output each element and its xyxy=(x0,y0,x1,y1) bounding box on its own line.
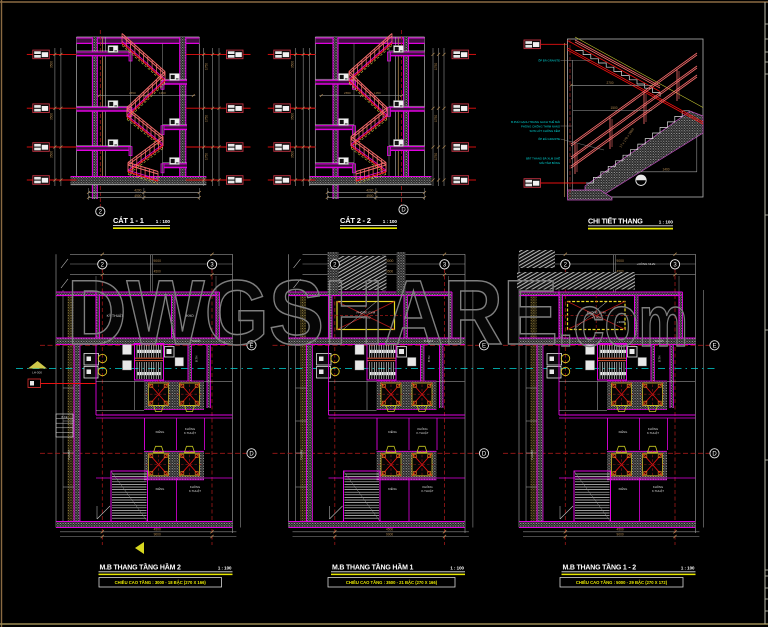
svg-text:1 : 100: 1 : 100 xyxy=(218,566,232,571)
svg-text:1750: 1750 xyxy=(434,63,438,70)
svg-text:9000: 9000 xyxy=(616,259,624,263)
svg-text:KIẾNG: KIẾNG xyxy=(156,486,165,491)
svg-text:BẬT THANG ĐÁ XLM GHẾ: BẬT THANG ĐÁ XLM GHẾ xyxy=(526,156,560,161)
svg-text:KIẾNG: KIẾNG xyxy=(619,429,628,434)
svg-text:4200: 4200 xyxy=(366,189,373,193)
svg-text:CHIỀU CAO TẦNG : 3000 - 18 BẬC: CHIỀU CAO TẦNG : 3000 - 18 BẬC (270 X 16… xyxy=(115,580,207,585)
svg-text:1350: 1350 xyxy=(374,91,381,95)
svg-text:TH.MÁY: TH.MÁY xyxy=(300,449,304,460)
svg-text:K.THUẬT: K.THUẬT xyxy=(189,488,201,493)
svg-text:3500: 3500 xyxy=(290,151,294,158)
svg-text:LH-300: LH-300 xyxy=(32,371,42,375)
svg-text:4500: 4500 xyxy=(154,528,161,532)
svg-text:1750: 1750 xyxy=(205,63,209,70)
svg-text:4900: 4900 xyxy=(134,194,141,198)
svg-text:KIẾNG: KIẾNG xyxy=(388,486,397,491)
svg-text:TH.MÁY: TH.MÁY xyxy=(67,449,71,460)
svg-text:D: D xyxy=(401,208,406,214)
svg-text:D: D xyxy=(249,452,254,458)
svg-text:K.THUẬT: K.THUẬT xyxy=(422,488,434,493)
svg-text:ỐP ĐÁ GRANITE: ỐP ĐÁ GRANITE xyxy=(538,58,560,63)
svg-text:PHÒNG CHỐNG THẤM NANO: PHÒNG CHỐNG THẤM NANO xyxy=(521,124,561,129)
svg-text:3500: 3500 xyxy=(50,151,54,158)
svg-text:1 : 100: 1 : 100 xyxy=(450,566,464,571)
svg-text:KIẾNG: KIẾNG xyxy=(156,429,165,434)
svg-text:B.PHỦ GẠCH TRANG GACH THẾ MÀI: B.PHỦ GẠCH TRANG GACH THẾ MÀI xyxy=(511,119,560,124)
svg-text:3500: 3500 xyxy=(50,61,54,68)
svg-text:CHIỀU CAO TẦNG : 3500 - 21 BẬC: CHIỀU CAO TẦNG : 3500 - 21 BẬC (270 X 16… xyxy=(346,580,438,585)
svg-text:9000: 9000 xyxy=(154,532,161,536)
svg-text:KIẾNG: KIẾNG xyxy=(619,486,628,491)
svg-text:CHIỀU CAO TẦNG : 5000 - 29 BẬC: CHIỀU CAO TẦNG : 5000 - 29 BẬC (270 X 17… xyxy=(576,580,668,585)
svg-text:K.THUẬT: K.THUẬT xyxy=(647,430,659,435)
svg-text:1350: 1350 xyxy=(159,91,166,95)
svg-text:CẮT 1 - 1: CẮT 1 - 1 xyxy=(113,216,144,225)
svg-text:D: D xyxy=(712,452,717,458)
svg-text:1400: 1400 xyxy=(662,167,669,171)
svg-text:1500: 1500 xyxy=(610,106,617,110)
svg-text:4900: 4900 xyxy=(366,194,373,198)
svg-text:TH.MÁY: TH.MÁY xyxy=(530,449,534,460)
svg-text:4500: 4500 xyxy=(617,528,624,532)
svg-text:1750: 1750 xyxy=(434,115,438,122)
svg-text:MÀI TẮM BÓNG: MÀI TẮM BÓNG xyxy=(539,160,560,165)
svg-text:4500: 4500 xyxy=(386,528,393,532)
svg-text:D: D xyxy=(482,452,487,458)
svg-text:1750: 1750 xyxy=(205,153,209,160)
svg-text:K.THUẬT: K.THUẬT xyxy=(652,488,664,493)
svg-text:.com: .com xyxy=(558,282,688,362)
svg-text:1 : 100: 1 : 100 xyxy=(383,219,398,224)
svg-text:CHI TIẾT THANG: CHI TIẾT THANG xyxy=(588,216,643,226)
svg-text:KIẾNG: KIẾNG xyxy=(388,429,397,434)
svg-text:1 : 100: 1 : 100 xyxy=(156,219,171,224)
svg-text:CẮT 2 - 2: CẮT 2 - 2 xyxy=(340,216,371,225)
svg-text:E: E xyxy=(712,344,716,350)
svg-text:1750: 1750 xyxy=(205,115,209,122)
svg-text:B.KE: B.KE xyxy=(62,415,68,419)
svg-text:9000: 9000 xyxy=(617,532,624,536)
svg-text:9000: 9000 xyxy=(386,532,393,536)
svg-text:3500: 3500 xyxy=(290,61,294,68)
svg-text:K.THUẬT: K.THUẬT xyxy=(417,430,429,435)
svg-text:2700: 2700 xyxy=(606,81,613,85)
svg-text:2650: 2650 xyxy=(344,91,351,95)
svg-text:ỐP ĐÁ GRANITE: ỐP ĐÁ GRANITE xyxy=(538,136,560,141)
svg-text:+CỔNG NHAI: +CỔNG NHAI xyxy=(637,261,656,266)
svg-text:1 : 100: 1 : 100 xyxy=(681,566,695,571)
svg-text:3500: 3500 xyxy=(50,113,54,120)
svg-text:2650: 2650 xyxy=(129,91,136,95)
svg-text:SƠN LÓT CHỐNG KỀM: SƠN LÓT CHỐNG KỀM xyxy=(530,128,561,133)
svg-text:1 : 100: 1 : 100 xyxy=(659,220,674,225)
svg-text:3500: 3500 xyxy=(290,113,294,120)
svg-text:K.THUẬT: K.THUẬT xyxy=(184,430,196,435)
svg-text:4200: 4200 xyxy=(134,189,141,193)
svg-text:DWGSHARE: DWGSHARE xyxy=(67,262,558,364)
svg-text:1750: 1750 xyxy=(434,153,438,160)
